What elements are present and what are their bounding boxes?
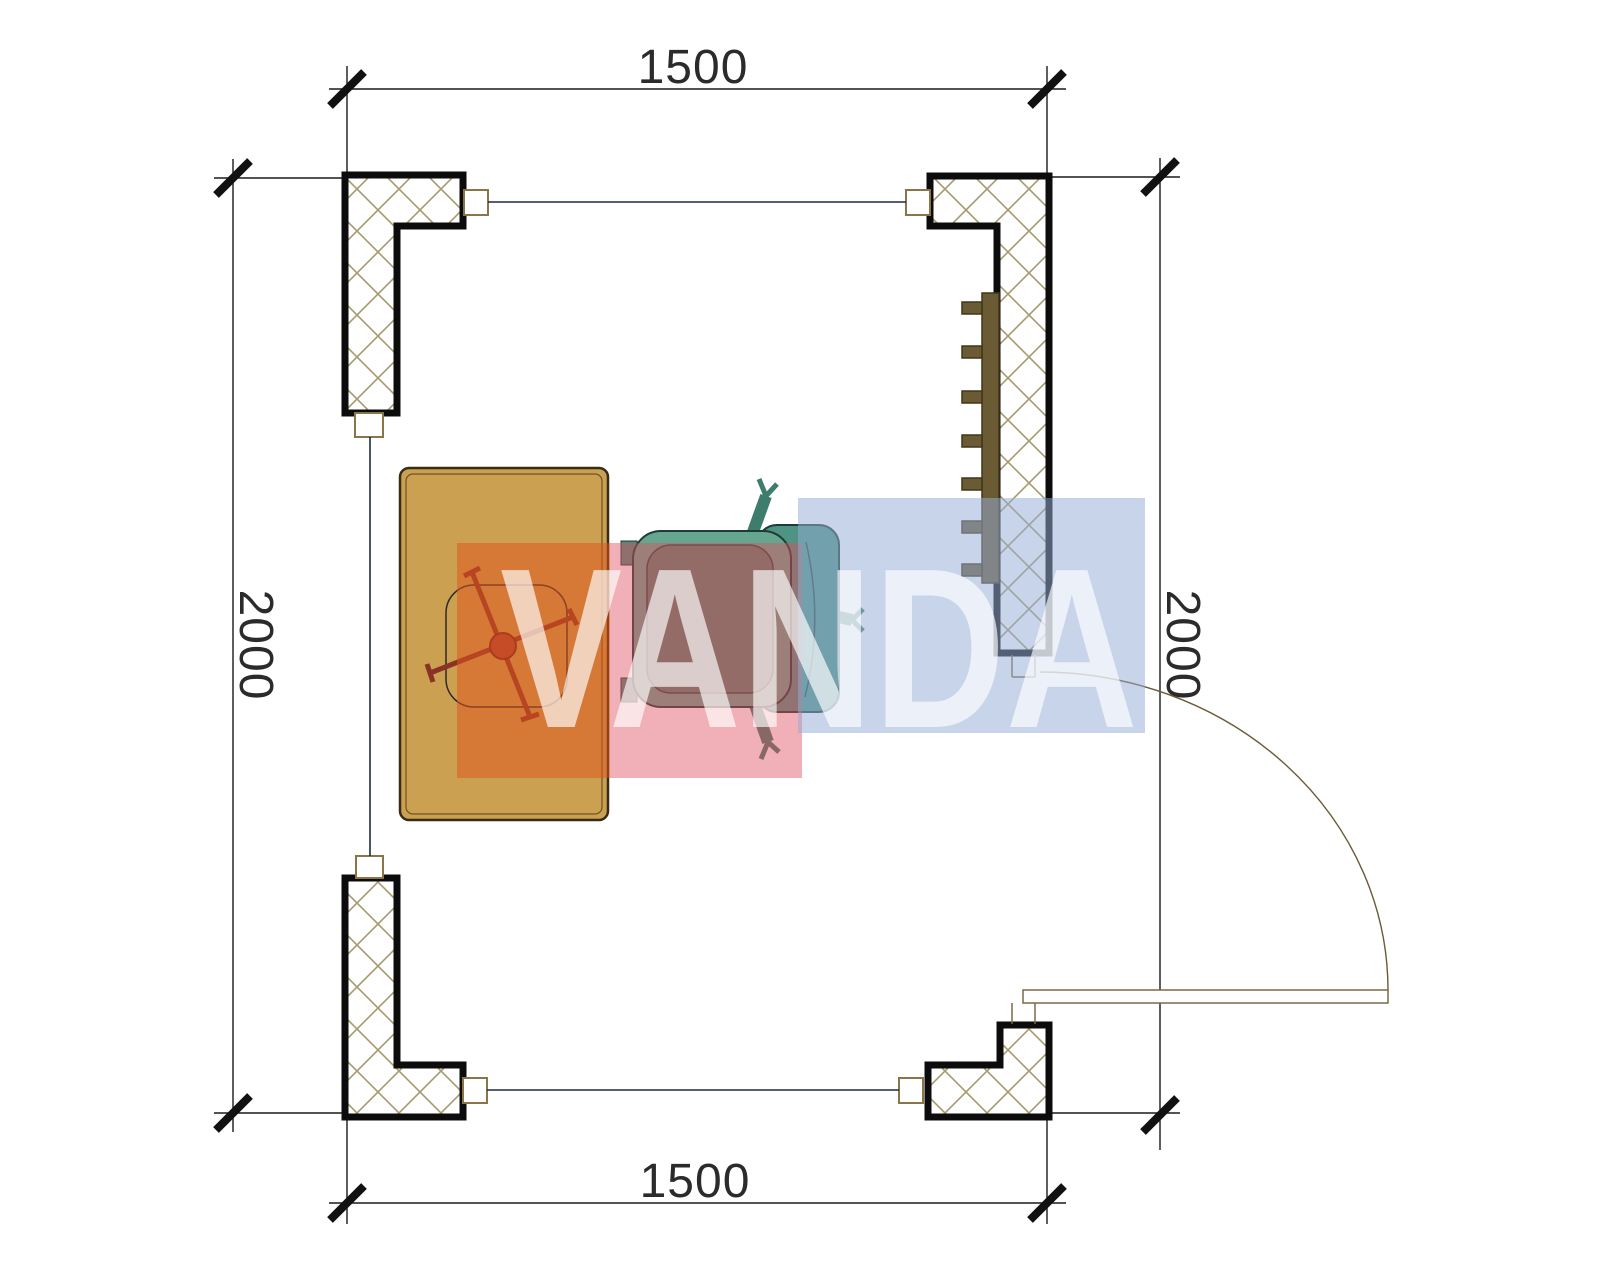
window-marker xyxy=(906,190,930,215)
door-leaf xyxy=(1023,990,1388,1003)
radiator-fin xyxy=(962,391,982,403)
dimension-top: 1500 xyxy=(329,41,1066,177)
dimension-label-bottom: 1500 xyxy=(640,1155,751,1208)
window-marker xyxy=(899,1078,923,1103)
radiator-fin xyxy=(962,302,982,314)
window-marker xyxy=(356,856,383,878)
watermark-text: VANDA xyxy=(500,522,1138,776)
wall-bottom-left xyxy=(345,878,463,1117)
leg-prong xyxy=(766,484,777,496)
wall-top-left xyxy=(345,175,463,413)
window-marker xyxy=(464,190,488,215)
floor-plan-page: 1500 1500 2000 2000 xyxy=(0,0,1600,1280)
radiator-fin xyxy=(962,346,982,358)
dimension-label-top: 1500 xyxy=(638,41,749,94)
radiator-fin xyxy=(962,435,982,447)
wall-bottom-right xyxy=(928,1025,1049,1117)
dimension-left: 2000 xyxy=(214,159,345,1132)
dimension-bottom: 1500 xyxy=(329,1117,1066,1224)
dimension-label-right: 2000 xyxy=(1156,590,1209,701)
dimension-label-left: 2000 xyxy=(229,590,282,701)
window-marker xyxy=(463,1078,487,1103)
radiator-fin xyxy=(962,478,982,490)
watermark: VANDA xyxy=(457,498,1145,778)
floor-plan-canvas: 1500 1500 2000 2000 xyxy=(0,0,1600,1280)
window-marker xyxy=(355,413,383,437)
